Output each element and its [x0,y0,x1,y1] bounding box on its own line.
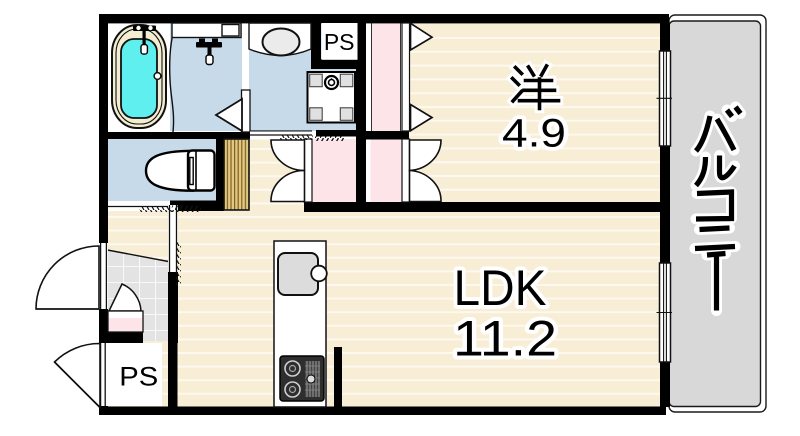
svg-text:PS: PS [324,29,355,55]
svg-text:PS: PS [119,361,158,391]
svg-text:4.9: 4.9 [502,112,566,156]
svg-text:11.2: 11.2 [453,310,557,366]
svg-text:LDK: LDK [454,260,547,316]
